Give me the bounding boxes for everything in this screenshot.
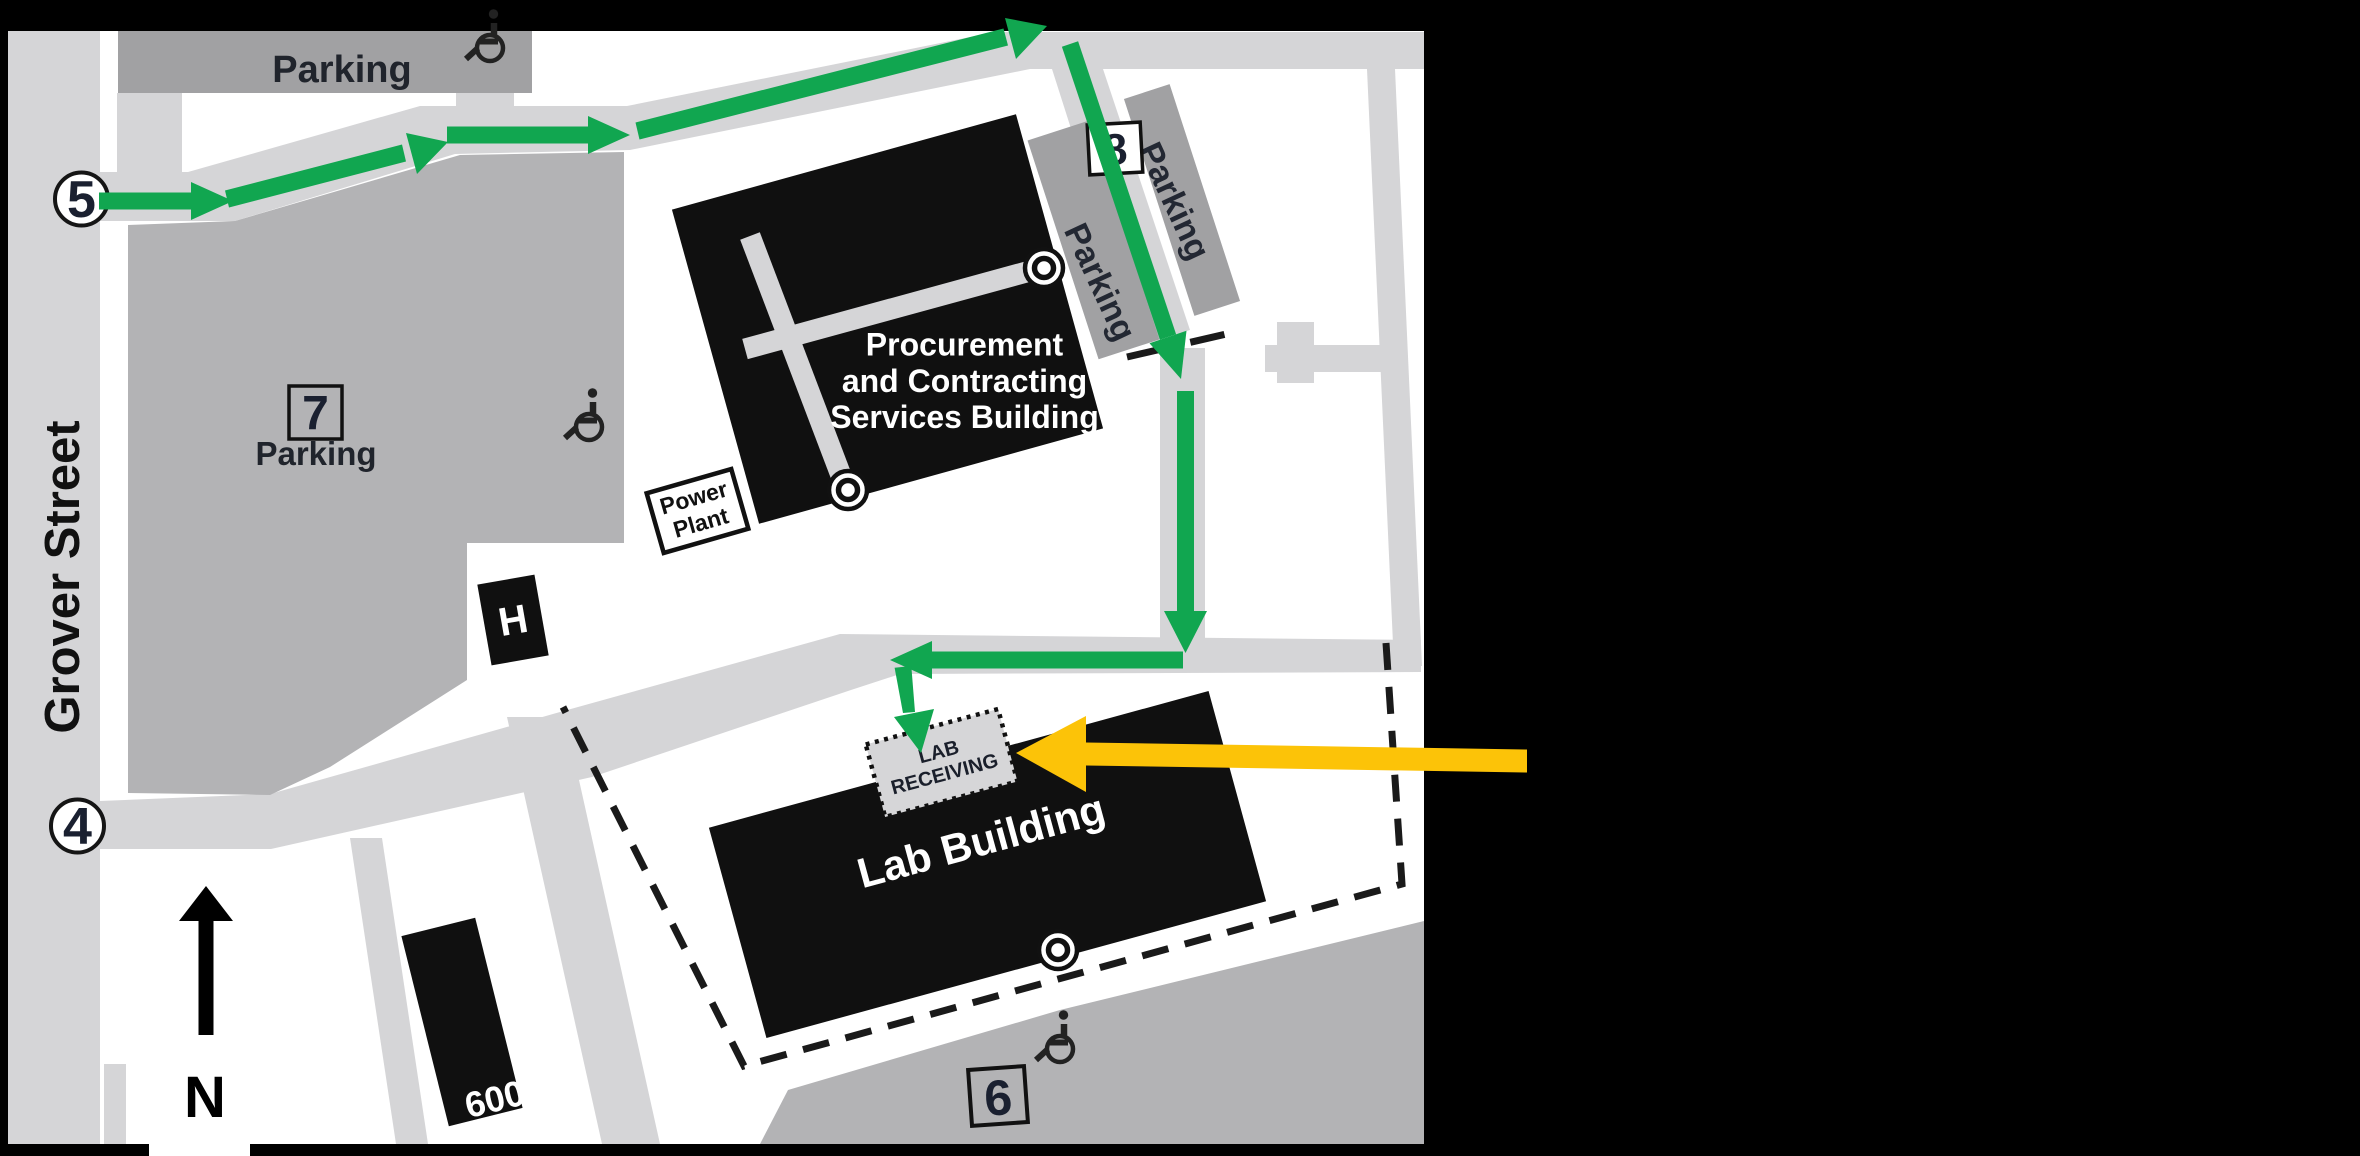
svg-text:and Contracting: and Contracting: [842, 363, 1087, 399]
svg-text:5: 5: [67, 171, 96, 229]
svg-text:Procurement: Procurement: [866, 327, 1064, 363]
svg-text:6: 6: [982, 1069, 1014, 1127]
svg-text:Parking: Parking: [272, 49, 411, 91]
svg-text:Services Building: Services Building: [830, 399, 1099, 435]
svg-text:Parking: Parking: [255, 435, 376, 472]
svg-text:4: 4: [63, 798, 92, 856]
svg-text:Grover Street: Grover Street: [36, 420, 90, 733]
svg-text:N: N: [184, 1065, 226, 1130]
svg-text:7: 7: [302, 388, 329, 441]
